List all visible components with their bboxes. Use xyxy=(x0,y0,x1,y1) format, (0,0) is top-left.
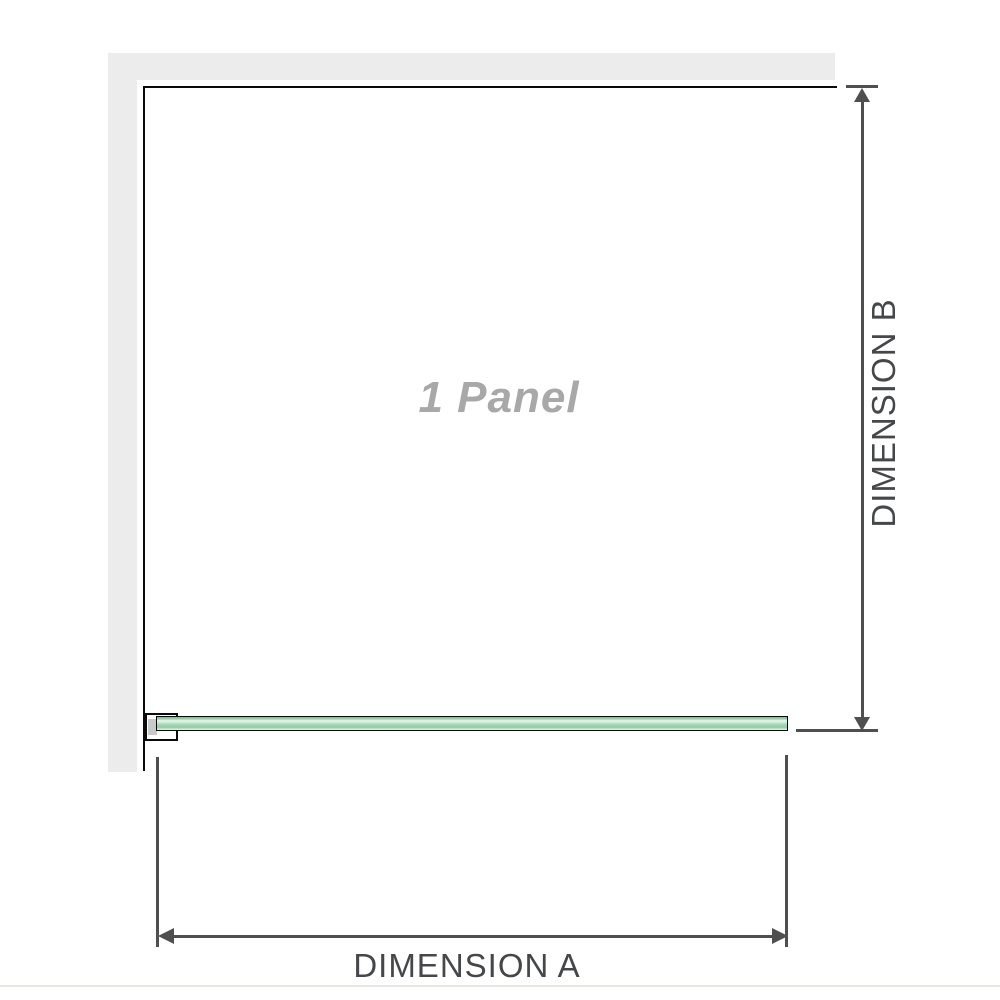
glass-panel xyxy=(156,716,788,731)
top-wall xyxy=(108,53,835,80)
panel-outline-top xyxy=(143,86,837,88)
dimension-a-line xyxy=(170,935,776,938)
dimension-b-line xyxy=(861,100,864,719)
bottom-divider xyxy=(0,985,1000,987)
arrow-up-icon xyxy=(854,88,870,102)
left-wall xyxy=(108,53,137,772)
arrow-right-icon xyxy=(772,928,788,944)
dimension-a-extension-right xyxy=(785,755,788,947)
arrow-left-icon xyxy=(158,928,174,944)
panel-outline-left xyxy=(143,86,145,771)
panel-count-label: 1 Panel xyxy=(418,373,579,423)
dimension-a-extension-left xyxy=(156,757,159,947)
dimension-a-label: DIMENSION A xyxy=(353,947,580,985)
dimension-b-label: DIMENSION B xyxy=(865,298,903,527)
arrow-down-icon xyxy=(854,717,870,731)
dimension-diagram: 1 Panel DIMENSION B DIMENSION A xyxy=(0,0,1000,1000)
